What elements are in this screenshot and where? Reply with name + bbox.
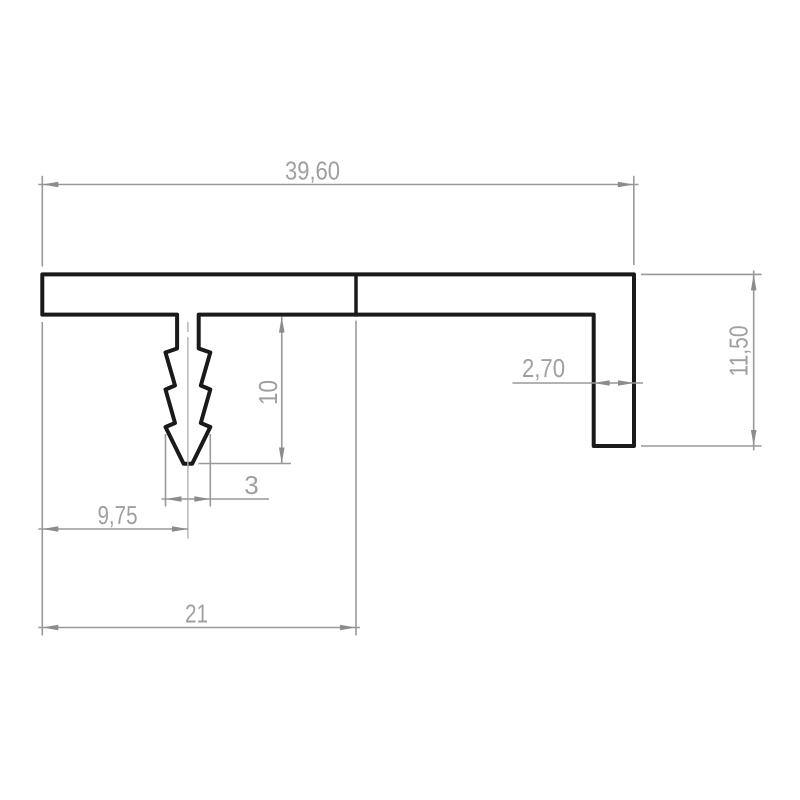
svg-text:3: 3 [244, 470, 258, 500]
svg-text:39,60: 39,60 [285, 156, 340, 186]
svg-text:11,50: 11,50 [724, 326, 754, 377]
svg-text:9,75: 9,75 [98, 500, 138, 530]
svg-text:2,70: 2,70 [522, 353, 565, 383]
svg-text:10: 10 [253, 380, 283, 405]
svg-text:21: 21 [185, 599, 208, 629]
